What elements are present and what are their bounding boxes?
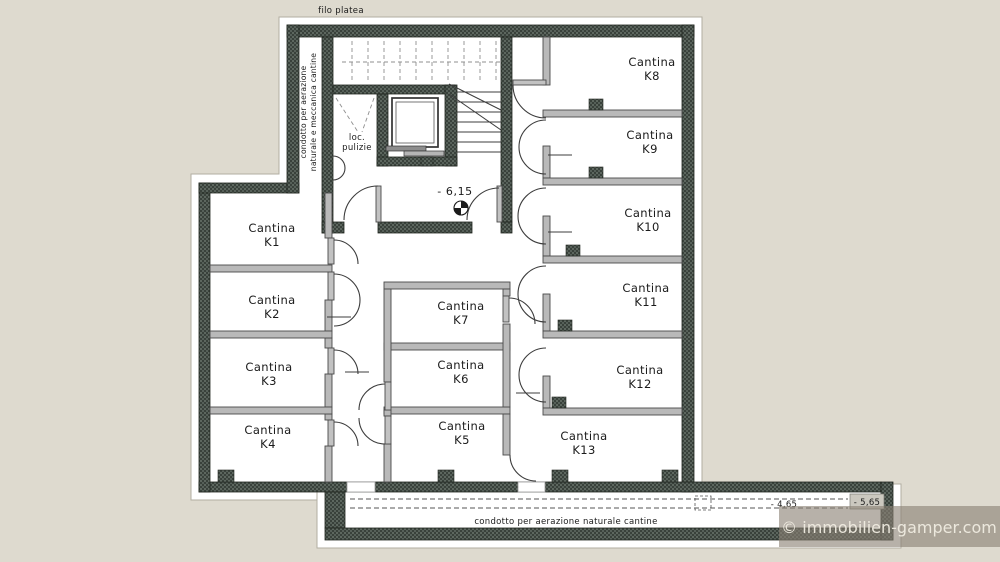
room-k4-name: Cantina xyxy=(244,423,291,437)
room-k2-name: Cantina xyxy=(248,293,295,307)
room-k8-name: Cantina xyxy=(628,55,675,69)
watermark-text: © immobilien-gamper.com xyxy=(781,518,997,537)
filo-platea-label: filo platea xyxy=(318,6,364,16)
room-k7-name: Cantina xyxy=(437,299,484,313)
room-k1-name: Cantina xyxy=(248,221,295,235)
room-k13-number: K13 xyxy=(572,443,595,457)
room-k8-number: K8 xyxy=(644,69,660,83)
room-k7-number: K7 xyxy=(453,313,469,327)
elevator-door-panel xyxy=(386,146,426,151)
room-k9-name: Cantina xyxy=(626,128,673,142)
room-k4-number: K4 xyxy=(260,437,276,451)
watermark: © immobilien-gamper.com xyxy=(779,506,1000,547)
cleaning-room-label-line2: pulizie xyxy=(342,143,372,153)
room-k5-name: Cantina xyxy=(438,419,485,433)
bottom-duct-label: condotto per aerazione naturale cantine xyxy=(474,517,657,527)
room-k1-number: K1 xyxy=(264,235,280,249)
elevator-door-panel xyxy=(404,151,444,156)
left-duct-label-line2: naturale e meccanica cantine xyxy=(309,53,318,171)
room-k10-name: Cantina xyxy=(624,206,671,220)
room-k12-number: K12 xyxy=(628,377,651,391)
floor-plan-page: filo platea condotto per aerazione natur… xyxy=(0,0,1000,562)
room-k6-number: K6 xyxy=(453,372,469,386)
cleaning-room-label-line1: loc. xyxy=(349,133,365,143)
room-k3-number: K3 xyxy=(261,374,277,388)
room-k10-number: K10 xyxy=(636,220,659,234)
level-symbol xyxy=(454,201,468,215)
left-duct-label-line1: condotto per aerazione xyxy=(299,65,308,158)
room-k6-name: Cantina xyxy=(437,358,484,372)
room-k12-name: Cantina xyxy=(616,363,663,377)
room-k11-number: K11 xyxy=(634,295,657,309)
floor-plan-drawing: filo platea condotto per aerazione natur… xyxy=(0,0,1000,562)
room-k3-name: Cantina xyxy=(245,360,292,374)
room-k11-name: Cantina xyxy=(622,281,669,295)
room-k13-name: Cantina xyxy=(560,429,607,443)
room-k5-number: K5 xyxy=(454,433,470,447)
room-k2-number: K2 xyxy=(264,307,280,321)
level-basement-label: - 6,15 xyxy=(437,185,473,198)
room-k9-number: K9 xyxy=(642,142,658,156)
